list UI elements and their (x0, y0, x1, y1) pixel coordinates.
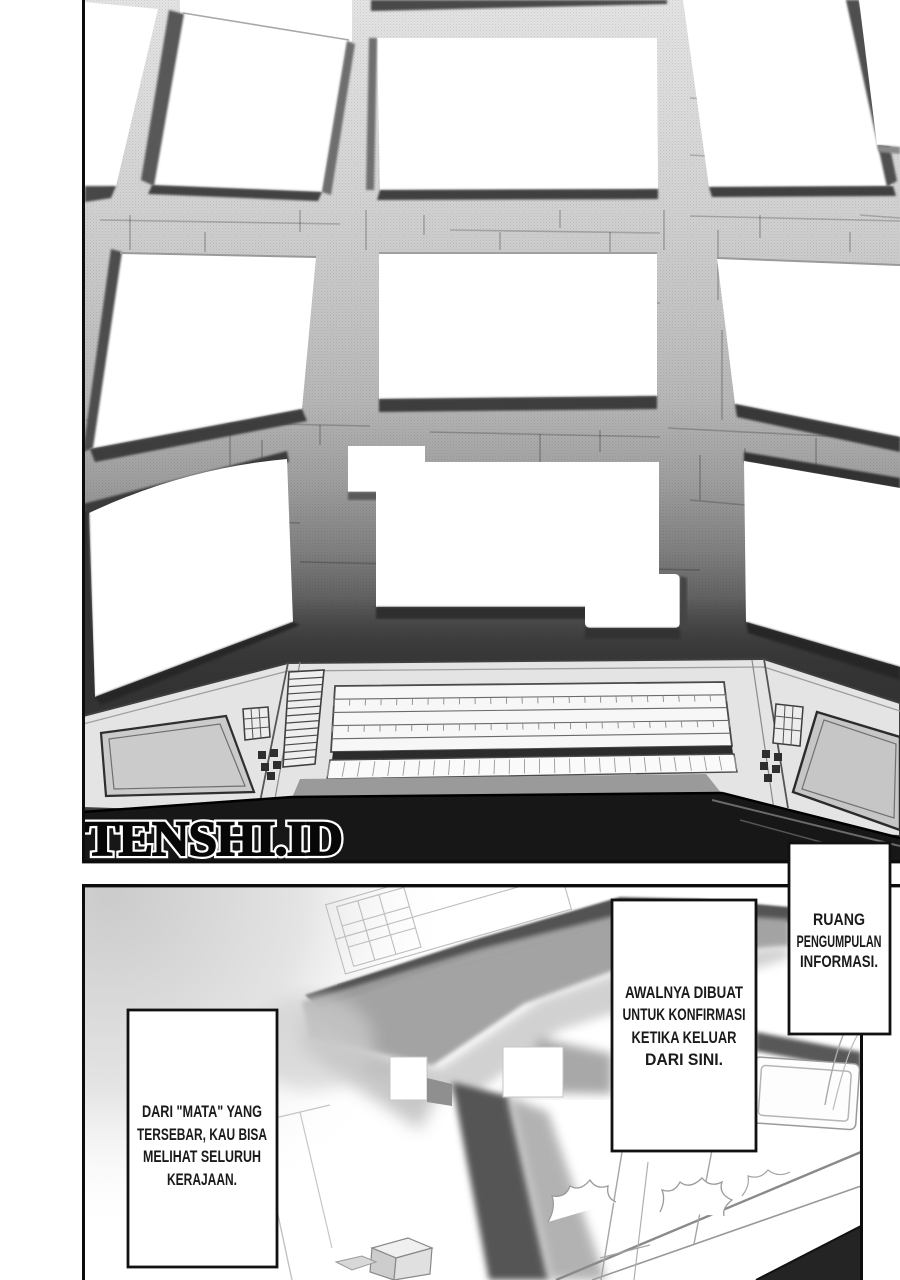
svg-text:KETIKA KELUAR: KETIKA KELUAR (632, 1029, 737, 1047)
svg-text:MELIHAT SELURUH: MELIHAT SELURUH (143, 1148, 261, 1166)
svg-text:DARI "MATA" YANG: DARI "MATA" YANG (142, 1103, 262, 1121)
svg-text:INFORMASI.: INFORMASI. (800, 953, 878, 971)
svg-text:TERSEBAR, KAU BISA: TERSEBAR, KAU BISA (137, 1126, 267, 1144)
svg-text:KERAJAAN.: KERAJAAN. (167, 1171, 237, 1189)
svg-text:RUANG: RUANG (813, 911, 865, 929)
svg-text:UNTUK KONFIRMASI: UNTUK KONFIRMASI (623, 1006, 746, 1024)
svg-text:PENGUMPULAN: PENGUMPULAN (797, 933, 882, 951)
svg-text:TENSHI.ID: TENSHI.ID (85, 810, 342, 866)
svg-text:DARI SINI.: DARI SINI. (645, 1051, 723, 1069)
svg-text:AWALNYA DIBUAT: AWALNYA DIBUAT (625, 984, 743, 1002)
